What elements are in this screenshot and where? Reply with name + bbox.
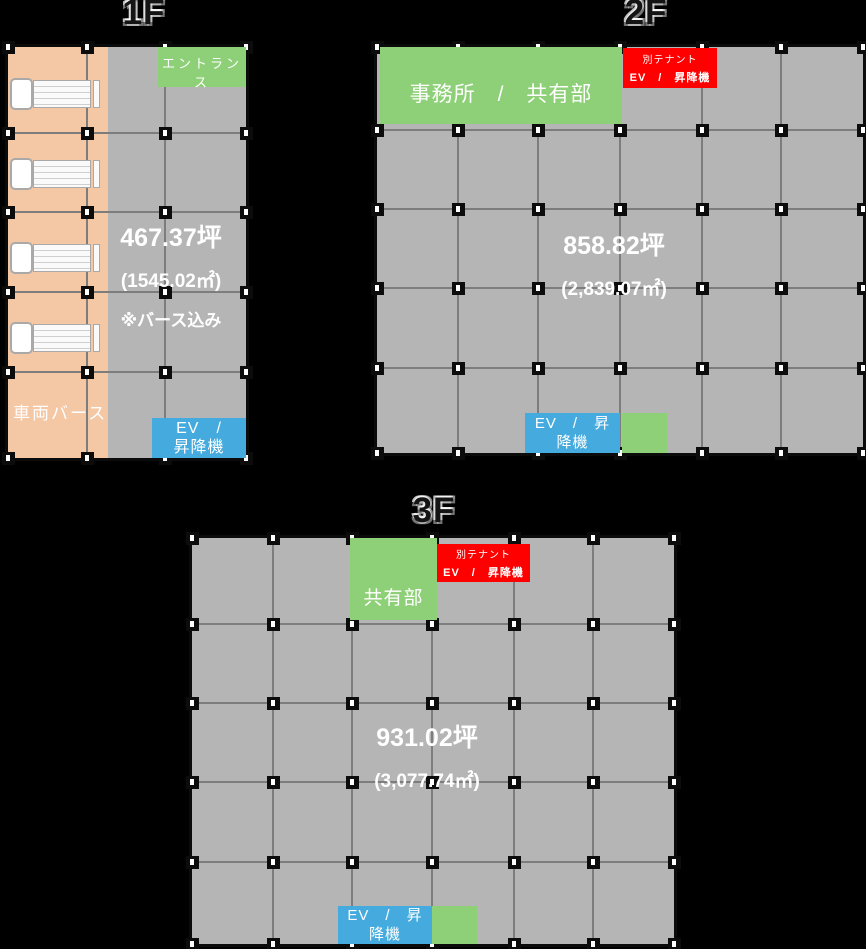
column-marker <box>81 366 94 379</box>
tenant-text-line1: 別テナント <box>643 51 698 66</box>
column-marker <box>2 127 15 140</box>
tenant-text-line1: 別テナント <box>456 546 511 561</box>
column-marker <box>775 362 788 375</box>
column-marker <box>346 856 359 869</box>
column-marker <box>508 618 521 631</box>
column-marker <box>186 938 199 949</box>
column-marker <box>696 203 709 216</box>
tenant-text-line2: EV / 昇降機 <box>630 69 711 85</box>
column-marker <box>452 282 465 295</box>
column-marker <box>186 697 199 710</box>
column-marker <box>2 452 15 465</box>
grid-line-vertical <box>272 538 274 944</box>
area-note: ※バース込み <box>120 306 221 331</box>
grid-line-vertical <box>592 538 594 944</box>
column-marker <box>532 203 545 216</box>
column-marker <box>508 776 521 789</box>
floor-2-area-text: 858.82坪 (2,839.07㎡) <box>561 226 667 314</box>
column-marker <box>267 618 280 631</box>
column-marker <box>2 286 15 299</box>
common-zone-small <box>432 906 477 944</box>
elevator-text-line2: 降機 <box>556 433 588 452</box>
column-marker <box>696 282 709 295</box>
column-marker <box>2 41 15 54</box>
column-marker <box>426 856 439 869</box>
grid-line-vertical <box>780 47 782 453</box>
column-marker <box>240 286 253 299</box>
column-marker <box>775 124 788 137</box>
truck-icon <box>10 158 100 190</box>
column-marker <box>508 856 521 869</box>
column-marker <box>81 286 94 299</box>
column-marker <box>267 532 280 545</box>
column-marker <box>857 203 866 216</box>
column-marker <box>775 203 788 216</box>
column-marker <box>426 697 439 710</box>
column-marker <box>81 41 94 54</box>
column-marker <box>267 856 280 869</box>
entrance-text: エントランス <box>158 53 246 91</box>
column-marker <box>857 124 866 137</box>
column-marker <box>532 362 545 375</box>
truck-cab <box>10 78 33 110</box>
truck-bed <box>33 244 91 272</box>
truck-tail <box>93 160 100 188</box>
column-marker <box>587 856 600 869</box>
office-common-zone: 事務所 / 共有部 <box>380 47 622 124</box>
vehicle-berth-label: 車両バース <box>13 399 107 424</box>
area-square-meters: (1545.02㎡) <box>120 266 221 293</box>
column-marker <box>775 41 788 54</box>
area-square-meters: (2,839.07㎡) <box>561 274 667 301</box>
grid-line-vertical <box>701 47 703 453</box>
column-marker <box>2 206 15 219</box>
column-marker <box>775 447 788 460</box>
truck-icon <box>10 78 100 110</box>
column-marker <box>267 697 280 710</box>
floor-3-plan: 共有部 別テナント EV / 昇降機 931.02坪 (3,077.74㎡) E… <box>189 535 677 947</box>
column-marker <box>857 41 866 54</box>
other-tenant-ev-zone: 別テナント EV / 昇降機 <box>623 48 717 88</box>
elevator-text-line1: EV / 昇 <box>347 906 422 925</box>
grid-line-vertical <box>513 538 515 944</box>
common-zone-small <box>622 413 667 453</box>
column-marker <box>696 447 709 460</box>
column-marker <box>857 282 866 295</box>
office-common-text: 事務所 / 共有部 <box>410 78 593 108</box>
floor-3-area-text: 931.02坪 (3,077.74㎡) <box>374 718 480 806</box>
truck-icon <box>10 322 100 354</box>
truck-cab <box>10 322 33 354</box>
column-marker <box>81 206 94 219</box>
column-marker <box>857 447 866 460</box>
column-marker <box>532 282 545 295</box>
area-tsubo: 931.02坪 <box>374 718 480 754</box>
common-area-zone: 共有部 <box>350 538 437 620</box>
area-tsubo: 467.37坪 <box>120 218 221 254</box>
truck-icon <box>10 242 100 274</box>
column-marker <box>668 938 681 949</box>
column-marker <box>775 282 788 295</box>
column-marker <box>371 362 384 375</box>
column-marker <box>696 124 709 137</box>
floor-3-title: 3F <box>389 491 479 531</box>
column-marker <box>371 203 384 216</box>
column-marker <box>587 618 600 631</box>
column-marker <box>240 366 253 379</box>
truck-bed <box>33 80 91 108</box>
column-marker <box>186 618 199 631</box>
column-marker <box>508 697 521 710</box>
truck-tail <box>93 80 100 108</box>
column-marker <box>587 697 600 710</box>
floor-2-title: 2F <box>601 0 691 33</box>
column-marker <box>186 856 199 869</box>
column-marker <box>240 206 253 219</box>
other-tenant-ev-zone: 別テナント EV / 昇降機 <box>437 544 530 582</box>
column-marker <box>2 366 15 379</box>
elevator-zone: EV / 昇 降機 <box>525 413 620 453</box>
column-marker <box>857 362 866 375</box>
truck-bed <box>33 324 91 352</box>
elevator-text-line1: EV / 昇 <box>535 414 610 433</box>
grid-line-horizontal <box>8 132 246 134</box>
column-marker <box>696 362 709 375</box>
column-marker <box>587 776 600 789</box>
column-marker <box>159 366 172 379</box>
elevator-text-line2: 降機 <box>369 925 401 944</box>
column-marker <box>532 124 545 137</box>
column-marker <box>614 362 627 375</box>
column-marker <box>371 447 384 460</box>
column-marker <box>614 124 627 137</box>
column-marker <box>186 532 199 545</box>
column-marker <box>346 697 359 710</box>
truck-cab <box>10 158 33 190</box>
column-marker <box>81 452 94 465</box>
column-marker <box>668 697 681 710</box>
column-marker <box>159 127 172 140</box>
column-marker <box>267 938 280 949</box>
column-marker <box>267 776 280 789</box>
truck-bed <box>33 160 91 188</box>
floor-1-plan: エントランス 467.37坪 (1545.02㎡) ※バース込み 車両バース E… <box>5 44 249 461</box>
elevator-text-line1: EV / <box>176 419 222 438</box>
column-marker <box>587 938 600 949</box>
elevator-text-line2: 昇降機 <box>173 438 224 457</box>
column-marker <box>508 938 521 949</box>
column-marker <box>668 776 681 789</box>
column-marker <box>371 282 384 295</box>
column-marker <box>186 776 199 789</box>
truck-tail <box>93 244 100 272</box>
truck-tail <box>93 324 100 352</box>
column-marker <box>81 127 94 140</box>
entrance-label: エントランス <box>158 47 246 87</box>
column-marker <box>668 532 681 545</box>
column-marker <box>587 532 600 545</box>
column-marker <box>452 362 465 375</box>
column-marker <box>346 776 359 789</box>
elevator-zone: EV / 昇 降機 <box>338 906 432 944</box>
common-area-text: 共有部 <box>363 583 423 610</box>
column-marker <box>614 203 627 216</box>
column-marker <box>668 856 681 869</box>
column-marker <box>452 124 465 137</box>
column-marker <box>668 618 681 631</box>
elevator-zone: EV / 昇降機 <box>152 418 246 458</box>
floor-2-plan: 事務所 / 共有部 別テナント EV / 昇降機 858.82坪 (2,839.… <box>374 44 866 456</box>
area-square-meters: (3,077.74㎡) <box>374 766 480 793</box>
column-marker <box>452 447 465 460</box>
floor-1-area-text: 467.37坪 (1545.02㎡) ※バース込み <box>120 218 221 331</box>
tenant-text-line2: EV / 昇降機 <box>443 564 524 580</box>
column-marker <box>452 203 465 216</box>
area-tsubo: 858.82坪 <box>561 226 667 262</box>
floorplan-canvas: 1F 2F 3F エントランス 467.37坪 (1545.02㎡) ※バース込… <box>0 0 866 949</box>
grid-line-horizontal <box>8 371 246 373</box>
truck-cab <box>10 242 33 274</box>
grid-line-horizontal <box>8 211 246 213</box>
column-marker <box>240 127 253 140</box>
floor-1-title: 1F <box>99 0 189 33</box>
column-marker <box>371 124 384 137</box>
